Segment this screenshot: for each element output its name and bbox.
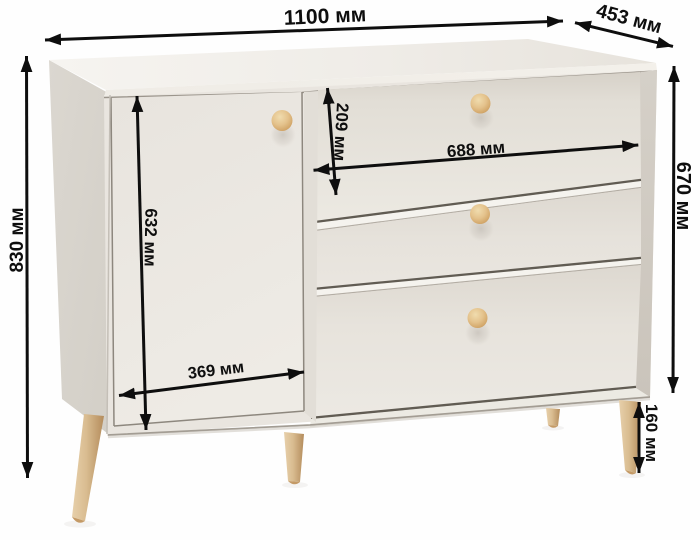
- svg-text:1100 мм: 1100 мм: [283, 3, 366, 30]
- svg-text:160 мм: 160 мм: [642, 404, 661, 462]
- svg-text:670 мм: 670 мм: [672, 162, 694, 231]
- svg-text:830 мм: 830 мм: [7, 207, 28, 272]
- svg-text:209 мм: 209 мм: [330, 102, 352, 161]
- svg-text:632 мм: 632 мм: [140, 208, 160, 267]
